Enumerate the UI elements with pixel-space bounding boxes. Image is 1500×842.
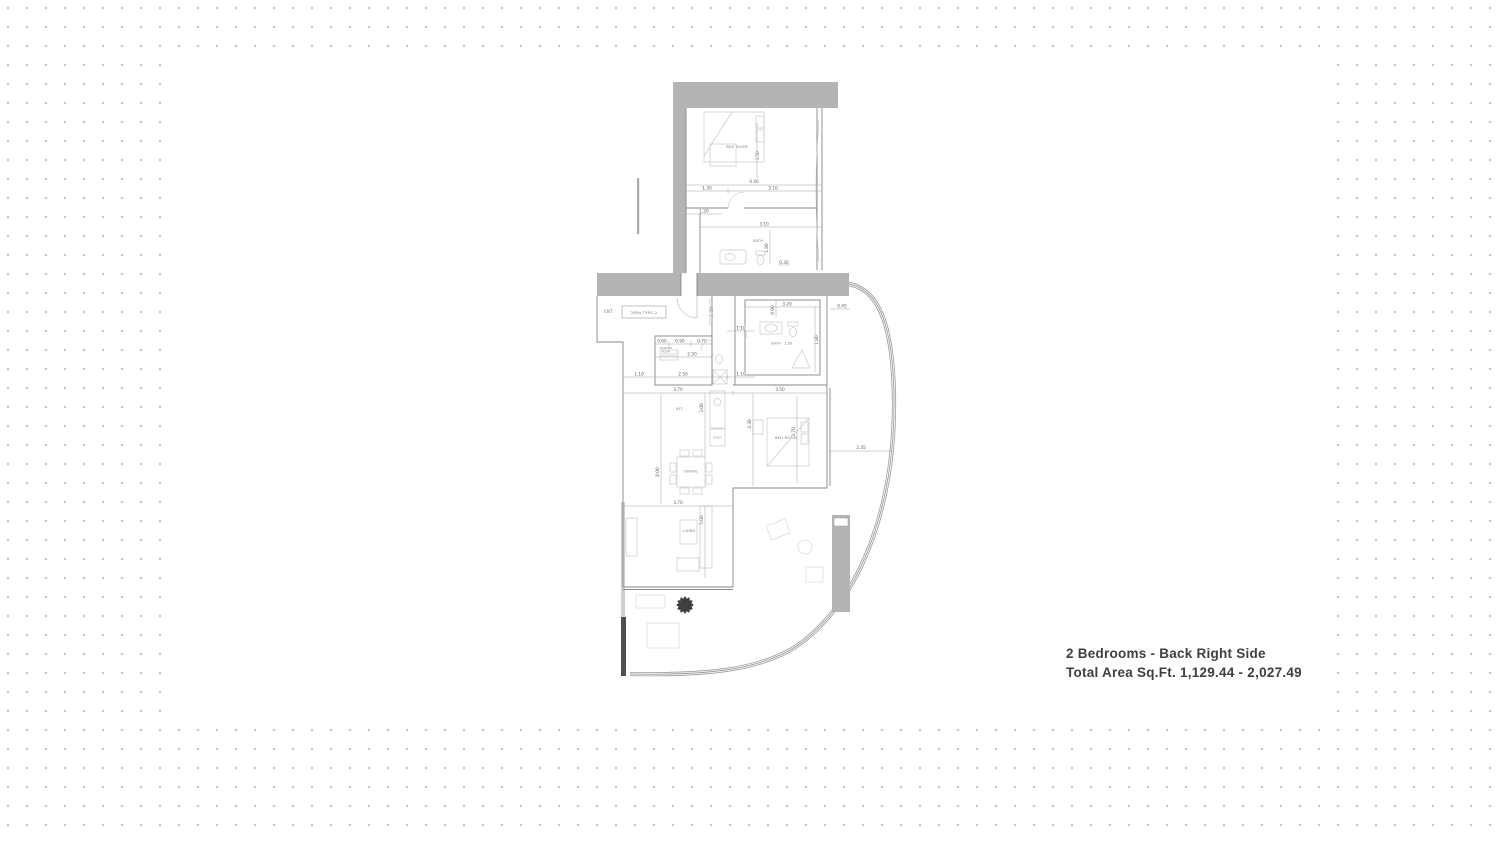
furniture <box>626 112 810 571</box>
dim-1-30: 1.30 <box>702 186 712 192</box>
dim-1-10-c: 1.10 <box>736 372 746 378</box>
dim-3-50: 3.50 <box>775 387 785 393</box>
bedroom1-label: BED ROOM <box>726 145 748 149</box>
bath2-label: BATH <box>771 342 781 346</box>
plant-icon <box>676 596 693 613</box>
outdoor-furniture <box>636 519 823 648</box>
floor-plan-sheet: 2BRs TYPE-2 BED ROOM BATH ENT. POWDER RO… <box>0 0 1500 842</box>
dim-3-20: 3.20 <box>782 302 792 308</box>
dim-3-10-b: 3.10 <box>759 222 769 228</box>
dim-3-00-v: 3.00 <box>699 403 705 413</box>
dim-4-40: 4.40 <box>749 179 759 185</box>
bath1-label: BATH <box>753 239 763 243</box>
entry-label: ENT. <box>604 309 614 314</box>
dim-0-30: 0.30 <box>779 260 789 266</box>
floor-plan-drawing: 2BRs TYPE-2 BED ROOM BATH ENT. POWDER RO… <box>592 78 902 688</box>
dim-1-80-b: 1.80 <box>814 335 820 345</box>
balcony-planter <box>832 515 850 612</box>
dining-label: DINING <box>684 470 698 474</box>
plan-title: 2 Bedrooms - Back Right Side <box>1066 644 1302 663</box>
dim-3-10-a: 3.10 <box>768 186 778 192</box>
dim-1-10-b: 1.10 <box>634 372 644 378</box>
dim-0-45: 0.45 <box>837 304 847 310</box>
kitchen-label: KIT. <box>676 406 684 411</box>
dim-0-70: 0.70 <box>697 339 707 345</box>
powder-room-label-2: ROOM <box>662 350 671 354</box>
dim-0-90-v: 0.90 <box>770 305 776 315</box>
dim-1-20-a: 1.20 <box>699 209 709 215</box>
dim-1-80-a: 1.80 <box>764 243 770 253</box>
balcony-railing <box>630 284 894 674</box>
dim-0-60: 0.60 <box>657 339 667 345</box>
fridge-label: FRIDGE <box>713 437 722 440</box>
dim-2-50-a: 2.50 <box>687 352 697 358</box>
unit-type-label: 2BRs TYPE-2 <box>631 310 658 315</box>
dim-4-30-v: 4.30 <box>747 419 753 429</box>
dim-3-50-v: 3.50 <box>755 151 761 161</box>
dark-wall-segment <box>621 617 626 676</box>
room-outlines <box>597 108 830 590</box>
dim-5-00-v: 5.00 <box>699 515 705 525</box>
dim-8-00-v: 8.00 <box>655 467 661 477</box>
dim-1-50: 1.50 <box>784 342 791 346</box>
dim-3-70-a: 3.70 <box>673 387 683 393</box>
living-label: LIVING <box>682 529 695 533</box>
dim-3-70-v: 3.70 <box>791 427 797 437</box>
dim-2-50-b: 2.50 <box>678 372 688 378</box>
dim-1-20-v: 1.20 <box>709 307 715 317</box>
dim-3-70-b: 3.70 <box>673 500 683 506</box>
plan-area: Total Area Sq.Ft. 1,129.44 - 2,027.49 <box>1066 663 1302 682</box>
dimension-labels: 4.40 1.30 3.10 3.50 1.20 3.10 1.80 0.30 … <box>634 151 866 525</box>
dim-0-90: 0.90 <box>675 339 685 345</box>
dim-1-10-a: 1.10 <box>736 326 746 332</box>
title-block: 2 Bedrooms - Back Right Side Total Area … <box>1066 644 1302 682</box>
dim-2-35: 2.35 <box>856 445 866 451</box>
